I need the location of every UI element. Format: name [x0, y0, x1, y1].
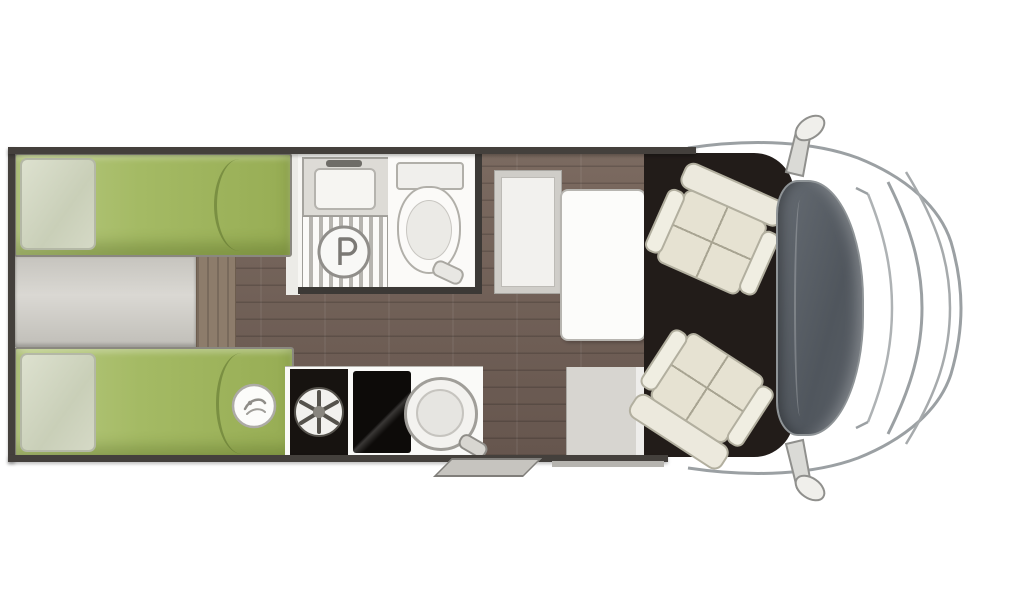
wiper-arc — [868, 194, 892, 422]
side-wall-top — [8, 147, 696, 154]
faucet — [326, 160, 362, 167]
rear-wall — [8, 147, 15, 462]
glass-hob — [353, 371, 411, 453]
motorhome-floorplan — [0, 0, 1024, 609]
side-mirror-top — [786, 111, 829, 176]
brand-badge-icon — [230, 382, 278, 430]
burner-fan-icon — [292, 385, 346, 439]
dinette-table — [560, 189, 646, 341]
washroom-wall — [475, 153, 482, 294]
dinette-bench-cushion — [501, 177, 555, 287]
kitchen-sink-bowl — [416, 389, 464, 437]
entry-step — [433, 458, 542, 477]
between-beds-platform — [14, 253, 196, 347]
toilet-room — [388, 156, 474, 286]
rear-bed-upper — [14, 153, 292, 257]
bed-access-step — [196, 245, 236, 349]
side-mirror-bottom — [786, 440, 829, 505]
pillow — [20, 353, 96, 452]
washroom-wall — [298, 287, 482, 294]
washroom — [298, 153, 482, 294]
windshield-reflection — [794, 200, 806, 416]
bumper-line — [906, 172, 950, 444]
pillow — [20, 158, 96, 250]
duvet-fold-line — [214, 159, 265, 251]
shower-drain-icon — [315, 223, 373, 281]
toilet-flush-handle — [430, 258, 466, 287]
wall-shadow — [552, 461, 664, 467]
washbasin — [314, 168, 376, 210]
toilet-bowl — [397, 186, 461, 274]
washbasin-unit — [302, 157, 390, 217]
dinette-bench — [494, 170, 562, 294]
toilet-bowl-inner — [406, 200, 452, 260]
